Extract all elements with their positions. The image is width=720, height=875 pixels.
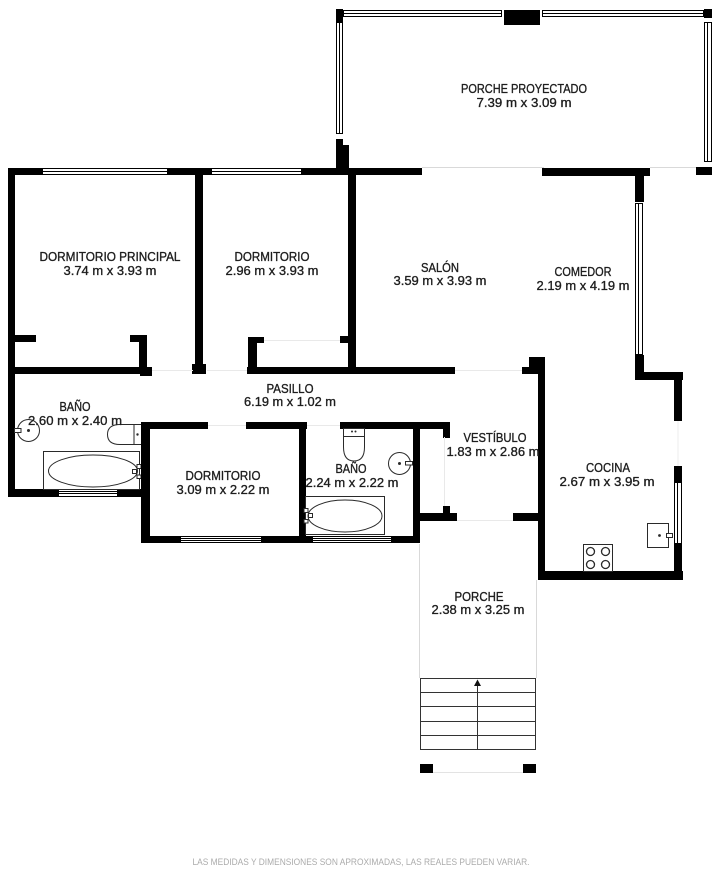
svg-text:3.59 m x 3.93 m: 3.59 m x 3.93 m bbox=[394, 273, 487, 288]
svg-text:COCINA: COCINA bbox=[586, 460, 630, 475]
svg-text:DORMITORIO PRINCIPAL: DORMITORIO PRINCIPAL bbox=[40, 249, 181, 264]
svg-text:1.83 m x 2.86 m: 1.83 m x 2.86 m bbox=[447, 444, 540, 459]
svg-text:2.19 m x 4.19 m: 2.19 m x 4.19 m bbox=[537, 278, 630, 293]
svg-text:7.39 m x 3.09 m: 7.39 m x 3.09 m bbox=[477, 95, 572, 110]
svg-text:LAS MEDIDAS Y DIMENSIONES SON: LAS MEDIDAS Y DIMENSIONES SON APROXIMADA… bbox=[193, 857, 530, 868]
svg-text:2.60 m x 2.40 m: 2.60 m x 2.40 m bbox=[28, 413, 122, 428]
svg-text:2.67 m x 3.95 m: 2.67 m x 3.95 m bbox=[560, 474, 655, 489]
svg-text:VESTÍBULO: VESTÍBULO bbox=[464, 430, 527, 445]
svg-text:3.74 m x 3.93 m: 3.74 m x 3.93 m bbox=[64, 263, 157, 278]
svg-text:3.09 m x 2.22 m: 3.09 m x 2.22 m bbox=[177, 482, 270, 497]
svg-text:2.96 m x 3.93 m: 2.96 m x 3.93 m bbox=[226, 263, 319, 278]
svg-text:BAÑO: BAÑO bbox=[336, 461, 367, 476]
svg-text:2.24 m x 2.22 m: 2.24 m x 2.22 m bbox=[306, 475, 399, 490]
svg-text:DORMITORIO: DORMITORIO bbox=[235, 249, 310, 264]
svg-text:2.38 m x 3.25 m: 2.38 m x 3.25 m bbox=[432, 602, 525, 617]
svg-text:COMEDOR: COMEDOR bbox=[555, 264, 612, 279]
svg-text:6.19 m x 1.02 m: 6.19 m x 1.02 m bbox=[244, 394, 336, 409]
svg-text:PORCHE PROYECTADO: PORCHE PROYECTADO bbox=[461, 81, 587, 96]
svg-text:DORMITORIO: DORMITORIO bbox=[186, 468, 261, 483]
svg-text:BAÑO: BAÑO bbox=[60, 399, 91, 414]
